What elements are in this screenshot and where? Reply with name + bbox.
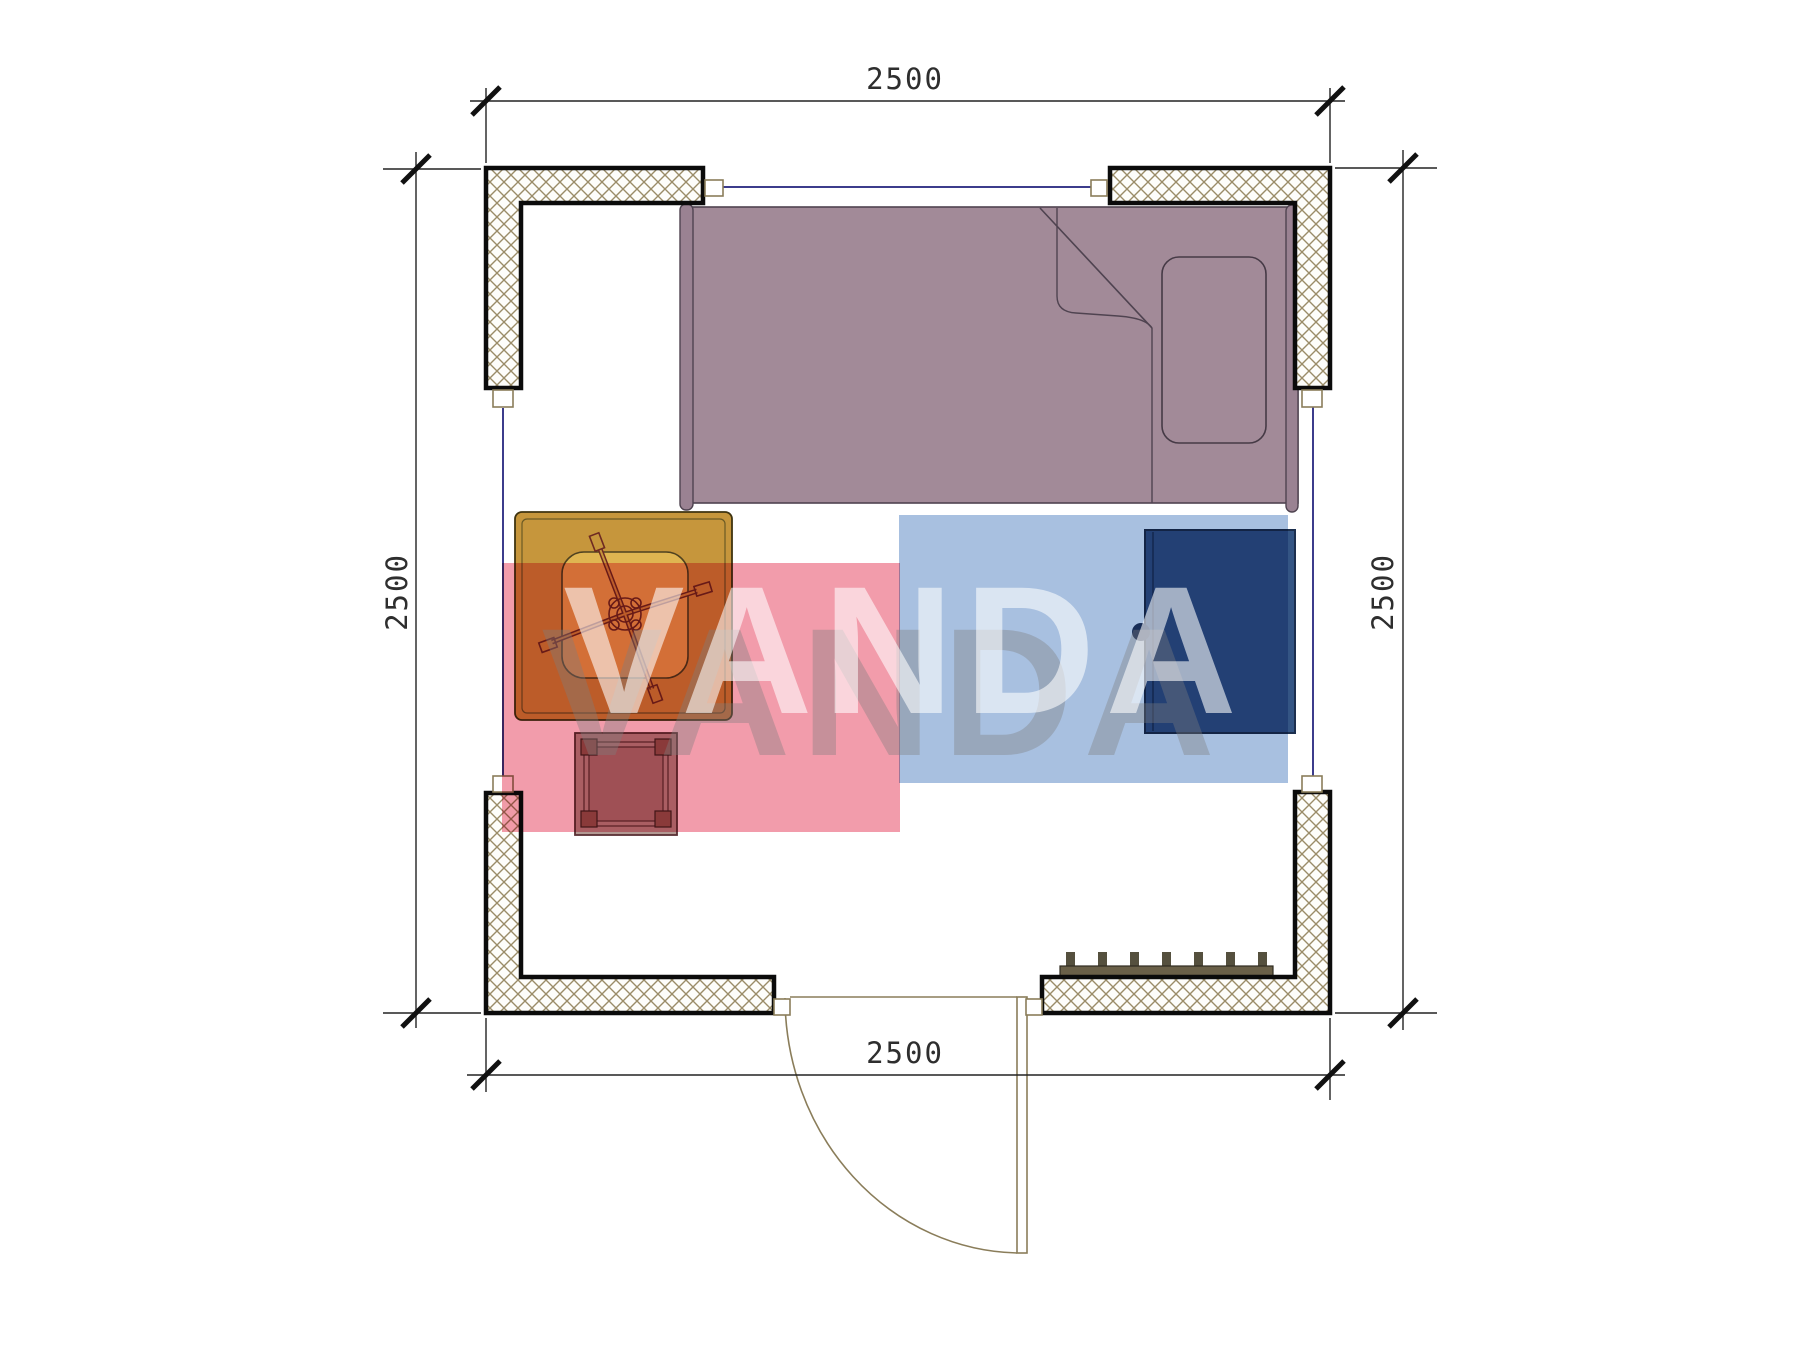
heater-fin [1162, 952, 1171, 967]
wall-stub [1302, 776, 1322, 792]
wall-stub [774, 999, 790, 1015]
wall-stub [1026, 999, 1042, 1015]
door-leaf [1017, 997, 1027, 1253]
wall-stub [705, 180, 723, 196]
wall-stub [1091, 180, 1107, 196]
heater-fin [1226, 952, 1235, 967]
bed-headboard [680, 204, 693, 510]
bed [680, 204, 1298, 512]
floor-plan-page: VANDA 2500 2500 2500 2500 [0, 0, 1800, 1350]
heater-fin [1098, 952, 1107, 967]
wall-bottom-right [1042, 792, 1330, 1013]
bed-pillow [1162, 257, 1266, 443]
dimension-label-right: 2500 [1366, 492, 1400, 692]
heater-fin [1066, 952, 1075, 967]
heater-fin [1194, 952, 1203, 967]
heater-fin [1130, 952, 1139, 967]
heater-fin [1258, 952, 1267, 967]
wall-stub [1302, 390, 1322, 407]
wall-top-left [486, 168, 703, 388]
watermark-text: VANDA [505, 559, 1305, 741]
dimension-label-left: 2500 [380, 492, 414, 692]
dimension-label-top: 2500 [805, 62, 1005, 96]
wall-stub [493, 390, 513, 407]
dimension-label-bottom: 2500 [805, 1036, 1005, 1070]
